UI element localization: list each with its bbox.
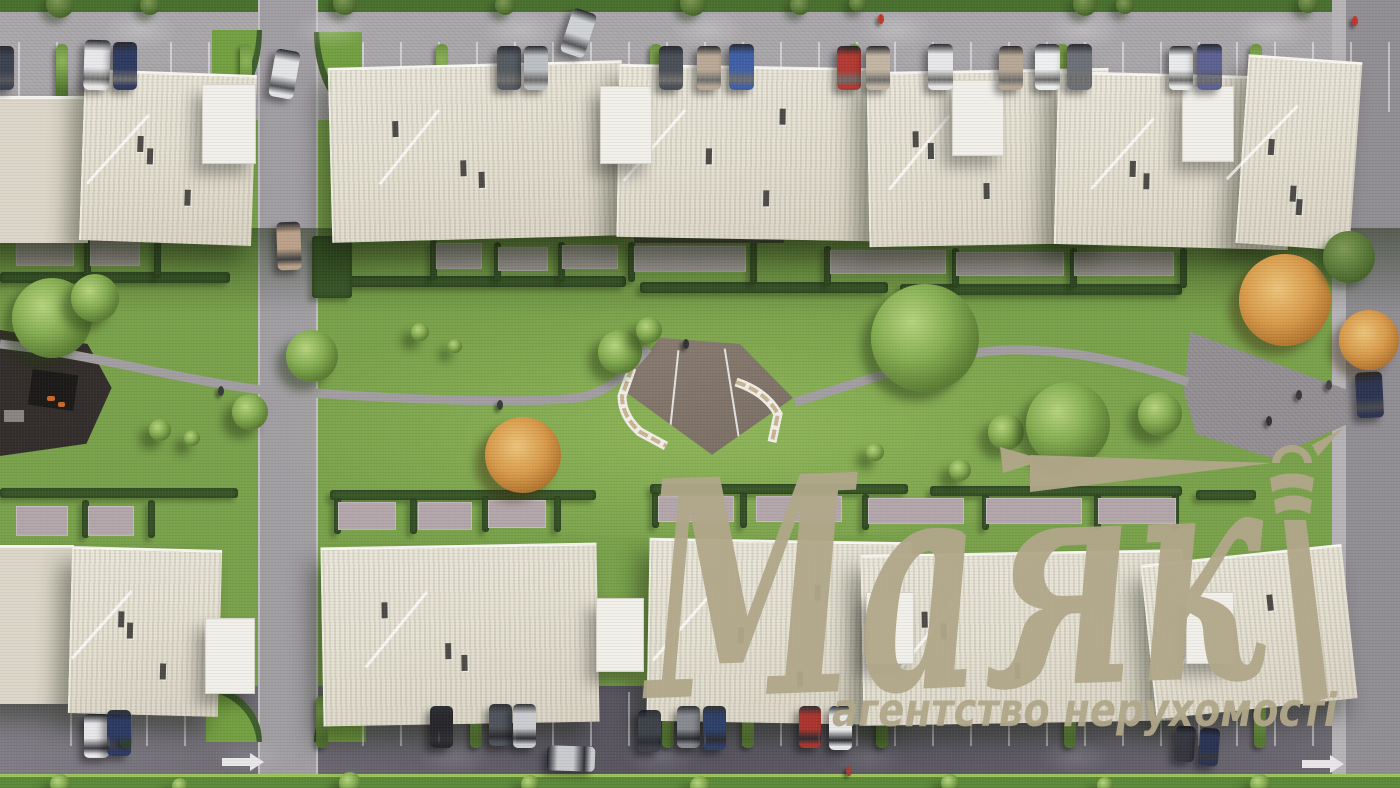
- terrace-patio: [868, 498, 964, 524]
- car: [107, 710, 131, 756]
- top-row-building: [0, 96, 88, 243]
- roof-window: [814, 585, 820, 601]
- terrace-patio: [498, 247, 548, 271]
- roof-ridge: [888, 115, 950, 190]
- lighthouse-band-icon: [1274, 496, 1312, 515]
- roof-window: [479, 172, 485, 188]
- terrace-patio: [90, 240, 140, 266]
- hedge: [330, 276, 626, 287]
- green-tree: [598, 330, 642, 374]
- roof-window: [137, 136, 144, 152]
- roof-window: [461, 655, 467, 671]
- bottom-row-building: [1140, 544, 1357, 719]
- car: [999, 46, 1023, 90]
- autumn-tree: [1239, 254, 1331, 346]
- green-tree: [1250, 774, 1270, 788]
- lighthouse-band-icon: [1270, 474, 1314, 493]
- car: [430, 706, 453, 748]
- green-tree: [411, 323, 429, 341]
- green-tree: [71, 274, 119, 322]
- terrace-patio: [956, 252, 1064, 276]
- autumn-tree: [485, 417, 561, 493]
- car: [524, 46, 548, 90]
- hedge: [740, 492, 747, 528]
- car: [113, 42, 137, 90]
- top-row-building: [328, 60, 626, 243]
- hedge: [410, 498, 417, 534]
- hedge: [1180, 248, 1187, 288]
- car: [677, 706, 700, 748]
- roof-ridge: [652, 585, 719, 662]
- green-tree: [988, 414, 1024, 450]
- street-light-pool: [212, 738, 288, 776]
- pedestrian: [218, 386, 224, 396]
- plaza-marking: [667, 350, 680, 454]
- pedestrian: [683, 339, 689, 349]
- terrace-patio: [1074, 252, 1174, 276]
- green-tree: [448, 339, 462, 353]
- car: [1174, 725, 1196, 762]
- green-tree: [949, 459, 971, 481]
- roof-window: [184, 190, 191, 206]
- roof-ridge: [379, 109, 440, 185]
- building-annex: [1186, 592, 1234, 664]
- terrace-patio: [16, 240, 74, 266]
- hedge: [154, 238, 161, 278]
- hedge: [1196, 490, 1256, 500]
- car: [1198, 727, 1221, 766]
- terrace-patio: [436, 243, 482, 269]
- car: [276, 222, 302, 271]
- hedge: [312, 236, 352, 298]
- autumn-tree: [1339, 310, 1399, 370]
- roof-window: [983, 183, 989, 199]
- pedestrian: [497, 400, 503, 410]
- roof-window: [779, 109, 785, 125]
- roof-window: [763, 190, 769, 206]
- roof-window: [927, 143, 933, 159]
- roof-window: [738, 627, 744, 643]
- roof-window: [381, 602, 387, 618]
- roof-window: [941, 624, 947, 640]
- hedge: [650, 484, 908, 494]
- street-light-pool: [292, 10, 368, 50]
- car: [638, 710, 661, 752]
- roof-window: [1267, 139, 1274, 155]
- green-tree: [1097, 777, 1113, 788]
- car: [0, 46, 14, 90]
- car: [83, 40, 111, 91]
- bottom-row-building: [68, 546, 222, 717]
- terrace-patio: [88, 506, 134, 536]
- car: [829, 706, 852, 750]
- car: [1197, 44, 1222, 90]
- roof-window: [1015, 663, 1021, 679]
- car: [1355, 371, 1384, 418]
- terrace-patio: [634, 246, 746, 272]
- car: [928, 44, 953, 90]
- building-annex: [596, 598, 644, 672]
- east-plaza: [1182, 328, 1352, 462]
- roof-window: [797, 671, 803, 687]
- building-annex: [600, 86, 652, 164]
- car: [1035, 44, 1060, 90]
- car: [497, 46, 521, 90]
- roof-ridge: [365, 591, 428, 668]
- green-tree: [339, 772, 361, 788]
- pedestrian: [1326, 380, 1332, 390]
- roof-window: [1296, 199, 1303, 215]
- roof-window: [705, 148, 711, 164]
- car: [729, 44, 754, 90]
- park-path-east: [795, 350, 1188, 402]
- building-annex: [205, 618, 255, 694]
- hedge: [640, 282, 888, 293]
- terrace-patio: [830, 250, 946, 274]
- terrace-patio: [338, 502, 396, 530]
- car: [1067, 44, 1092, 90]
- terrace-patio: [1098, 498, 1176, 524]
- car: [799, 706, 821, 748]
- pedestrian: [1266, 416, 1272, 426]
- green-tree: [866, 443, 884, 461]
- green-tree: [286, 330, 338, 382]
- playground-equipment: [47, 396, 55, 401]
- green-tree: [521, 775, 539, 788]
- aerial-residential-render: Маяк агентство нерухомості: [0, 0, 1400, 788]
- parking-hedge-separator: [56, 44, 68, 100]
- roof-window: [1266, 594, 1274, 611]
- green-tree: [232, 394, 268, 430]
- terrace-patio: [756, 496, 842, 522]
- hedge: [148, 500, 155, 538]
- playground-equipment: [4, 410, 24, 422]
- roof-window: [1143, 173, 1149, 189]
- playground-equipment: [28, 369, 79, 411]
- green-tree: [149, 419, 171, 441]
- plaza-marking: [724, 348, 743, 453]
- pedestrian: [1296, 390, 1302, 400]
- car: [547, 745, 596, 772]
- green-tree: [871, 284, 979, 392]
- hedge: [0, 488, 238, 498]
- green-tree: [1323, 231, 1375, 283]
- hedge: [554, 496, 561, 532]
- roof-window: [461, 160, 467, 176]
- green-tree: [941, 774, 959, 788]
- roof-window: [118, 611, 124, 627]
- car: [837, 46, 861, 90]
- roof-window: [1129, 161, 1135, 177]
- playground-equipment: [58, 402, 65, 407]
- building-annex: [202, 84, 256, 164]
- left-vertical-road: [258, 0, 318, 788]
- building-annex: [1182, 86, 1234, 162]
- car: [697, 46, 721, 90]
- car: [1169, 46, 1193, 90]
- car: [866, 46, 890, 90]
- roof-window: [921, 612, 927, 628]
- roof-window: [127, 623, 133, 639]
- green-tree: [184, 430, 200, 446]
- roof-window: [913, 131, 919, 147]
- roof-window: [392, 121, 398, 137]
- terrace-patio: [418, 502, 472, 530]
- car: [489, 704, 512, 746]
- pedestrian: [878, 14, 884, 24]
- pedestrian: [1352, 16, 1358, 26]
- hedge: [750, 240, 757, 284]
- pedestrian: [846, 766, 852, 776]
- green-tree: [1026, 382, 1110, 466]
- roof-window: [445, 643, 451, 659]
- car: [659, 46, 683, 90]
- roof-window: [160, 663, 166, 679]
- car: [703, 706, 726, 750]
- building-annex: [866, 592, 914, 664]
- green-tree: [1138, 392, 1182, 436]
- terrace-patio: [16, 506, 68, 536]
- bottom-row-building: [320, 543, 599, 727]
- terrace-patio: [658, 496, 734, 522]
- top-row-building: [617, 64, 874, 241]
- bottom-row-building: [0, 545, 74, 704]
- building-annex: [952, 80, 1004, 156]
- terrace-patio: [488, 500, 546, 528]
- green-tree: [636, 317, 662, 343]
- hedge: [930, 486, 1182, 496]
- top-row-building: [1236, 54, 1363, 250]
- car: [513, 704, 536, 748]
- green-tree: [50, 774, 70, 788]
- terrace-patio: [562, 245, 618, 269]
- green-tree: [172, 778, 188, 788]
- car: [84, 714, 109, 758]
- terrace-patio: [986, 498, 1082, 524]
- roof-window: [147, 148, 154, 164]
